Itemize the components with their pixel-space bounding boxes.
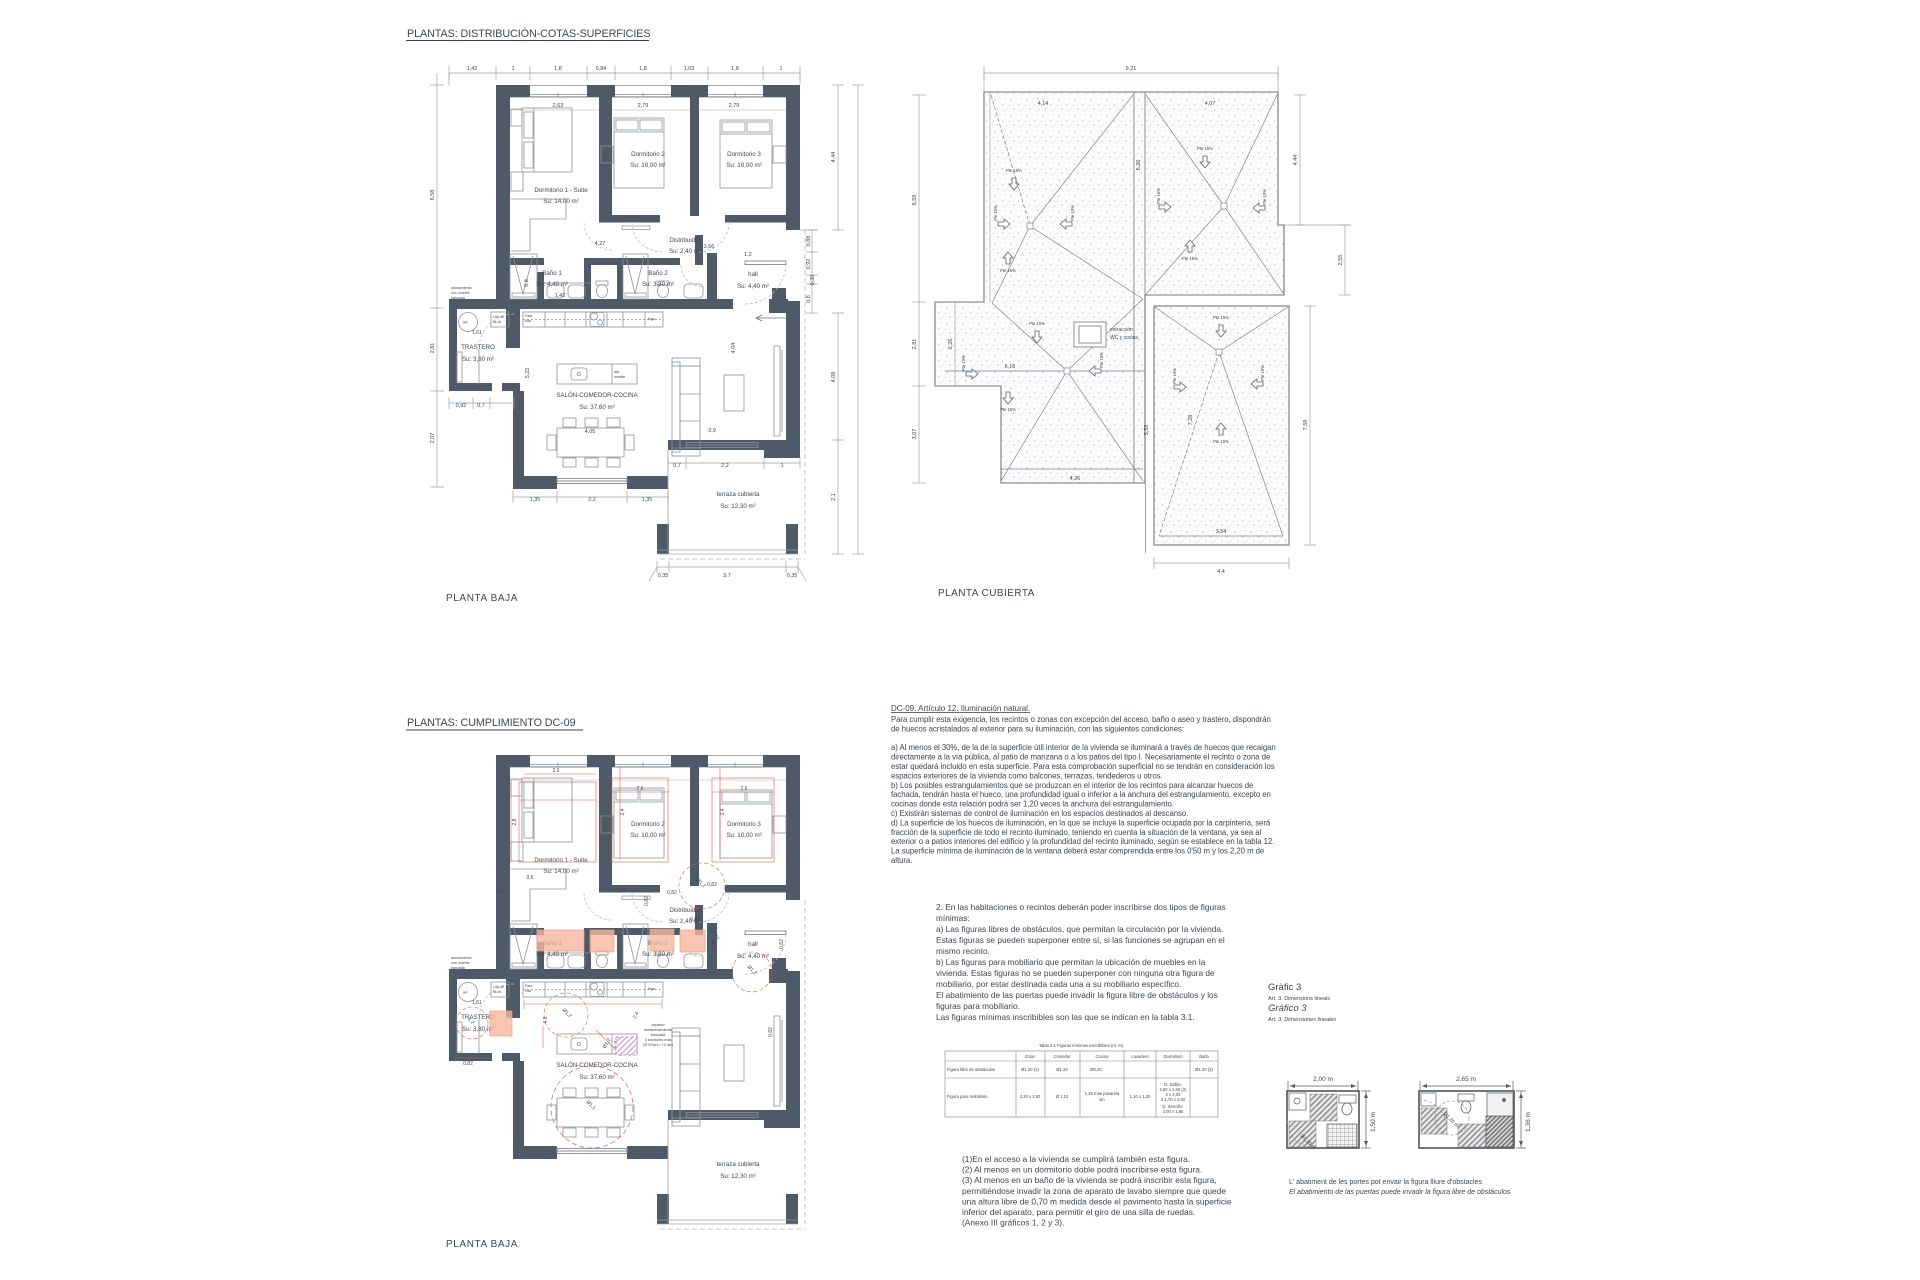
svg-text:2,63: 2,63 (553, 103, 564, 109)
svg-text:6,26: 6,26 (1136, 160, 1142, 171)
svg-text:Pte 15%: Pte 15% (1029, 321, 1045, 326)
svg-text:2,79: 2,79 (638, 103, 649, 109)
svg-text:ó 1,70 x 2,00: ó 1,70 x 2,00 (1161, 1097, 1186, 1102)
svg-text:bancada: bancada (651, 1033, 666, 1037)
svg-text:Estas figuras se pueden superp: Estas figuras se pueden superponer entre… (936, 935, 1225, 945)
svg-text:0,6: 0,6 (497, 889, 504, 895)
svg-text:Pte 15%: Pte 15% (1172, 368, 1177, 384)
svg-text:0,88: 0,88 (806, 236, 812, 247)
svg-text:1,10 x 1,20: 1,10 x 1,20 (1130, 1094, 1151, 1099)
svg-text:2,65 m: 2,65 m (1456, 1076, 1476, 1083)
svg-text:4,44: 4,44 (1293, 155, 1299, 166)
svg-text:1,35: 1,35 (530, 497, 541, 503)
svg-text:Pte 15%: Pte 15% (1182, 256, 1198, 261)
svg-text:Pte 15%: Pte 15% (1099, 352, 1104, 368)
svg-text:espacio: espacio (651, 1023, 664, 1027)
svg-text:5,22: 5,22 (525, 368, 531, 379)
svg-text:Pte 15%: Pte 15% (1197, 146, 1213, 151)
svg-text:PLANTA BAJA: PLANTA BAJA (446, 593, 518, 604)
svg-text:mismo recinto.: mismo recinto. (936, 946, 990, 956)
svg-text:4,08: 4,08 (831, 372, 837, 383)
svg-text:0,84: 0,84 (596, 66, 607, 72)
svg-text:2,55: 2,55 (1338, 255, 1344, 266)
svg-text:0,92: 0,92 (806, 259, 812, 270)
svg-text:Art. 3. Dimensions lineals: Art. 3. Dimensions lineals (1268, 996, 1330, 1002)
svg-text:Pte 15%: Pte 15% (1070, 205, 1075, 221)
svg-text:mínimas:: mínimas: (936, 913, 970, 923)
svg-text:una altura libre de 0,70 m med: una altura libre de 0,70 m medida desde … (962, 1196, 1232, 1206)
svg-text:Pte 15%: Pte 15% (1156, 188, 1161, 204)
svg-text:Dormitorio: Dormitorio (1163, 1054, 1183, 1059)
svg-text:1,42: 1,42 (467, 66, 478, 72)
svg-text:c) Existirán sistemas de contr: c) Existirán sistemas de control de ilum… (891, 809, 1188, 818)
svg-text:1,8: 1,8 (639, 66, 647, 72)
svg-text:Gràfic 3: Gràfic 3 (1268, 982, 1301, 993)
svg-text:3,54: 3,54 (1216, 529, 1227, 535)
svg-text:1,35: 1,35 (642, 497, 653, 503)
svg-text:4,0: 4,0 (543, 1016, 549, 1023)
svg-text:directamente a la vía pública,: directamente a la vía pública, al patio … (891, 753, 1270, 762)
svg-text:figuras para mobiliario.: figuras para mobiliario. (936, 1001, 1020, 1011)
svg-text:a) Las figuras libres de obstá: a) Las figuras libres de obstáculos, que… (936, 924, 1223, 934)
svg-text:DC-09. Artículo 12. Iluminació: DC-09. Artículo 12. Iluminación natural. (891, 704, 1030, 713)
svg-text:estar quedará incluido en esta: estar quedará incluido en esta superfici… (891, 762, 1275, 771)
svg-text:permitiéndose invadir la zona: permitiéndose invadir la zona de aparato… (962, 1186, 1226, 1196)
svg-text:extracción: extracción (1110, 327, 1133, 333)
svg-text:Ø0,20: Ø0,20 (1090, 1067, 1102, 1072)
svg-text:Pte 15%: Pte 15% (1213, 315, 1229, 320)
svg-text:7,58: 7,58 (1303, 420, 1309, 431)
svg-text:1: 1 (779, 66, 782, 72)
svg-text:espacios exteriores de la vivi: espacios exteriores de la vivienda como … (891, 771, 1163, 780)
svg-text:Para cumplir esta exigencia, l: Para cumplir esta exigencia, los recinto… (891, 715, 1271, 724)
svg-text:L' abatiment de les portes pot: L' abatiment de les portes pot envair la… (1289, 1179, 1482, 1186)
svg-text:Pte 15%: Pte 15% (1000, 407, 1016, 412)
svg-text:3,30 x 2,50: 3,30 x 2,50 (1020, 1094, 1041, 1099)
svg-text:0,35: 0,35 (658, 573, 669, 579)
svg-text:3 enchufes más: 3 enchufes más (645, 1038, 672, 1042)
svg-text:3,9: 3,9 (708, 428, 716, 434)
svg-text:2,07: 2,07 (430, 433, 436, 444)
svg-text:0,8: 0,8 (806, 295, 812, 303)
svg-text:Lavadero: Lavadero (1131, 1054, 1149, 1059)
svg-text:Ø1,20 (3): Ø1,20 (3) (1195, 1067, 1213, 1072)
svg-text:4,4: 4,4 (1217, 569, 1225, 575)
svg-text:cocinas donde esta relación po: cocinas donde esta relación podrá ser 1,… (891, 800, 1174, 809)
svg-text:1: 1 (511, 66, 514, 72)
svg-text:2,6: 2,6 (741, 786, 748, 792)
svg-text:3,66: 3,66 (704, 244, 715, 250)
svg-text:Ø 1,10: Ø 1,10 (1056, 1094, 1069, 1099)
svg-text:exterior o a patios interiores: exterior o a patios interiores del edifi… (891, 837, 1274, 846)
svg-text:Cocina: Cocina (1095, 1054, 1109, 1059)
svg-text:2,2: 2,2 (721, 463, 729, 469)
svg-text:7,28: 7,28 (1188, 415, 1194, 426)
svg-text:6,16: 6,16 (1005, 364, 1016, 370)
svg-text:4,44: 4,44 (831, 152, 837, 163)
svg-text:Figura para mobiliario: Figura para mobiliario (947, 1094, 988, 1099)
svg-text:inferior del aparato, para per: inferior del aparato, para permitir el g… (962, 1207, 1195, 1217)
svg-text:0,82: 0,82 (779, 939, 785, 949)
svg-text:Pte 15%: Pte 15% (961, 355, 966, 371)
svg-text:0,7: 0,7 (477, 403, 485, 409)
svg-text:WC y cocina: WC y cocina (1110, 335, 1138, 341)
svg-text:fachada, tendrán hasta el huec: fachada, tendrán hasta el hueco, una pro… (891, 790, 1271, 799)
svg-text:2,2: 2,2 (588, 497, 596, 503)
svg-text:fracción de la superficie de t: fracción de la superficie de todo el rec… (891, 828, 1262, 837)
svg-text:Pte 15%: Pte 15% (1006, 168, 1022, 173)
svg-text:2,00 m: 2,00 m (1313, 1076, 1333, 1083)
svg-text:PLANTA CUBIERTA: PLANTA CUBIERTA (938, 588, 1035, 599)
svg-text:1,8: 1,8 (731, 66, 739, 72)
svg-text:2,6: 2,6 (637, 786, 644, 792)
svg-text:0,82: 0,82 (667, 890, 677, 896)
svg-text:0,8: 0,8 (524, 279, 530, 287)
svg-text:4,07: 4,07 (1205, 101, 1216, 107)
svg-text:2,4: 2,4 (620, 808, 626, 815)
svg-text:1,42: 1,42 (555, 293, 566, 299)
svg-text:3,7: 3,7 (723, 573, 731, 579)
svg-text:PLANTAS: DISTRIBUCIÓN-COTAS-SU: PLANTAS: DISTRIBUCIÓN-COTAS-SUPERFICIES (407, 27, 650, 40)
svg-text:2,81: 2,81 (430, 343, 436, 354)
svg-text:Baño: Baño (1199, 1054, 1209, 1059)
svg-text:4,26: 4,26 (1070, 476, 1081, 482)
svg-text:1,36 m: 1,36 m (1525, 1112, 1532, 1132)
svg-text:1,50 m: 1,50 m (1370, 1112, 1377, 1132)
svg-text:20+20cm / +2 aux: 20+20cm / +2 aux (643, 1043, 673, 1047)
svg-text:El abatimiento de las puertas: El abatimiento de las puertas puede inva… (1289, 1189, 1511, 1196)
svg-text:mobiliario, por estar destinad: mobiliario, por estar destinada cada una… (936, 979, 1181, 989)
svg-text:vivienda. Estas figuras no se: vivienda. Estas figuras no se pueden sup… (936, 968, 1215, 978)
svg-text:9,21: 9,21 (1126, 66, 1137, 72)
svg-text:0,82: 0,82 (707, 882, 717, 888)
svg-text:0,82: 0,82 (644, 896, 650, 906)
svg-text:Pte 15%: Pte 15% (1000, 268, 1016, 273)
svg-text:0,82: 0,82 (615, 888, 625, 894)
svg-text:altura.: altura. (891, 856, 912, 865)
svg-text:1,03: 1,03 (684, 66, 695, 72)
svg-text:0,6: 0,6 (527, 875, 534, 881)
svg-text:Las figuras mínimas inscribibl: Las figuras mínimas inscribibles son las… (936, 1012, 1195, 1022)
svg-text:2,4: 2,4 (720, 808, 726, 815)
svg-text:2. En las habitaciones o recin: 2. En las habitaciones o recintos deberá… (936, 902, 1226, 912)
svg-text:0,92: 0,92 (456, 403, 467, 409)
svg-text:PLANTA BAJA: PLANTA BAJA (446, 1239, 518, 1250)
svg-text:Estar: Estar (1025, 1054, 1035, 1059)
svg-text:6,58: 6,58 (430, 190, 436, 201)
svg-text:Pte 15%: Pte 15% (1213, 439, 1229, 444)
svg-text:Pte 15%: Pte 15% (1260, 365, 1265, 381)
svg-text:1,40 más pasarela: 1,40 más pasarela (1085, 1091, 1120, 1096)
svg-text:4,05: 4,05 (585, 429, 596, 435)
svg-text:Pte 15%: Pte 15% (1262, 189, 1267, 205)
svg-text:0,82: 0,82 (463, 1061, 473, 1067)
svg-text:0,7: 0,7 (673, 463, 681, 469)
svg-text:2,79: 2,79 (729, 103, 740, 109)
svg-text:de huecos acristalados al exte: de huecos acristalados al exterior para … (891, 724, 1184, 733)
svg-text:0,35: 0,35 (810, 275, 816, 286)
svg-text:Tabla 3.1 Figuras mínimas ins: Tabla 3.1 Figuras mínimas inscribibles (… (1039, 1043, 1124, 1048)
svg-text:PLANTAS: CUMPLIMIENTO DC-09: PLANTAS: CUMPLIMIENTO DC-09 (407, 717, 576, 729)
svg-text:4,04: 4,04 (731, 343, 737, 354)
svg-text:0,82: 0,82 (768, 1027, 774, 1037)
svg-text:a) Al menos el 30%, de la de l: a) Al menos el 30%, de la de la superfic… (891, 743, 1276, 752)
svg-text:2,8: 2,8 (512, 818, 518, 825)
svg-text:(Anexo III gráficos 1, 2 y 3).: (Anexo III gráficos 1, 2 y 3). (962, 1218, 1064, 1228)
svg-text:5,53: 5,53 (1144, 425, 1150, 436)
svg-text:2,00 x 1,80: 2,00 x 1,80 (1163, 1109, 1184, 1114)
svg-text:Gráfico 3: Gráfico 3 (1268, 1003, 1307, 1014)
svg-text:2,1: 2,1 (831, 493, 837, 501)
svg-text:(1)En el acceso a la vivienda: (1)En el acceso a la vivienda se cumplir… (962, 1154, 1190, 1164)
svg-text:sin: sin (1099, 1097, 1105, 1102)
svg-text:3,07: 3,07 (912, 429, 918, 440)
svg-text:6,58: 6,58 (912, 195, 918, 206)
svg-text:almacenamiento: almacenamiento (644, 1028, 672, 1032)
svg-text:(3) Al menos en un baño de la: (3) Al menos en un baño de la vivienda s… (962, 1175, 1217, 1185)
svg-text:d) La superficie de los huecos: d) La superficie de los huecos de ilumin… (891, 818, 1271, 827)
svg-text:Ø1,20: Ø1,20 (1056, 1067, 1068, 1072)
svg-text:2,6: 2,6 (553, 768, 560, 774)
svg-text:b) Los posibles estrangulamien: b) Los posibles estrangulamientos que se… (891, 781, 1253, 790)
svg-text:0,35: 0,35 (787, 573, 798, 579)
svg-text:0,82: 0,82 (690, 917, 700, 923)
svg-text:El abatimiento de las puertas: El abatimiento de las puertas puede inva… (936, 990, 1218, 1000)
svg-text:4,27: 4,27 (595, 241, 606, 247)
svg-text:Figura libre de obstáculos: Figura libre de obstáculos (947, 1067, 995, 1072)
svg-text:4,14: 4,14 (1038, 101, 1049, 107)
svg-text:1: 1 (780, 463, 783, 469)
svg-text:1,8: 1,8 (554, 66, 562, 72)
svg-text:Comedor: Comedor (1053, 1054, 1071, 1059)
svg-text:b) Las figuras para mobiliario: b) Las figuras para mobiliario que permi… (936, 957, 1206, 967)
svg-text:Art. 3. Dimensiones lineales: Art. 3. Dimensiones lineales (1267, 1017, 1336, 1023)
svg-text:(2) Al menos en un dormitorio: (2) Al menos en un dormitorio doble podr… (962, 1165, 1202, 1175)
svg-text:Ø1,20 (1): Ø1,20 (1) (1021, 1067, 1039, 1072)
svg-text:1,2: 1,2 (744, 252, 752, 258)
svg-text:Pte 15%: Pte 15% (993, 205, 998, 221)
svg-text:La superficie mínima de ilumin: La superficie mínima de iluminación de l… (891, 847, 1264, 856)
svg-text:2,81: 2,81 (912, 339, 918, 350)
svg-text:2,26: 2,26 (948, 339, 954, 350)
